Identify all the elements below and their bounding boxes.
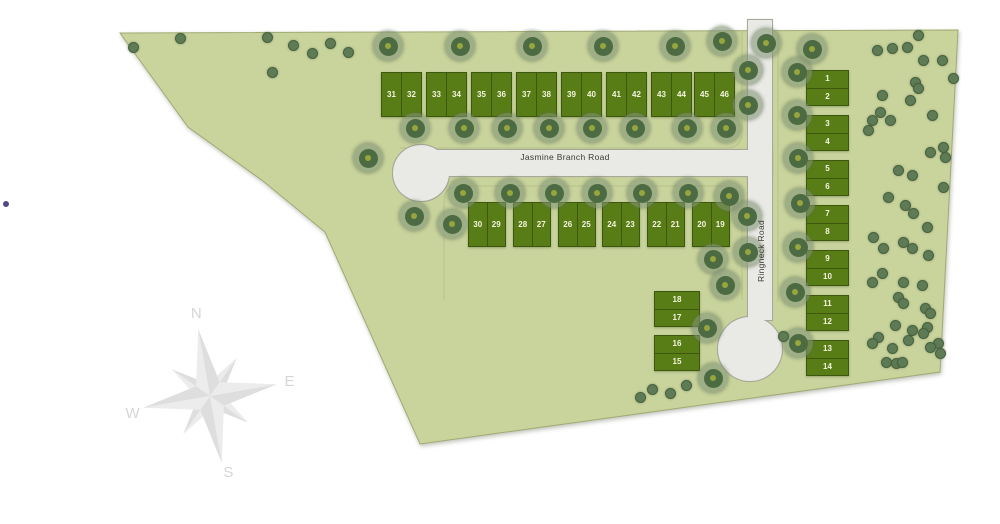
- compass-n: N: [191, 305, 202, 322]
- compass-rose: N E W S: [108, 290, 312, 498]
- parcel-boundary: [120, 30, 958, 444]
- stray-dot: [3, 201, 9, 207]
- compass-cardinal-points: [131, 317, 289, 475]
- compass-e: E: [284, 373, 294, 390]
- jasmine-branch-road-label: Jasmine Branch Road: [470, 151, 660, 163]
- compass-s: S: [223, 464, 233, 481]
- compass-w: W: [126, 405, 141, 422]
- site-map-svg: N E W S: [0, 0, 1000, 524]
- ringneck-road-label: Ringneck Road: [756, 220, 766, 282]
- site-plan: N E W S 31323334353637383940414243444546…: [0, 0, 1000, 524]
